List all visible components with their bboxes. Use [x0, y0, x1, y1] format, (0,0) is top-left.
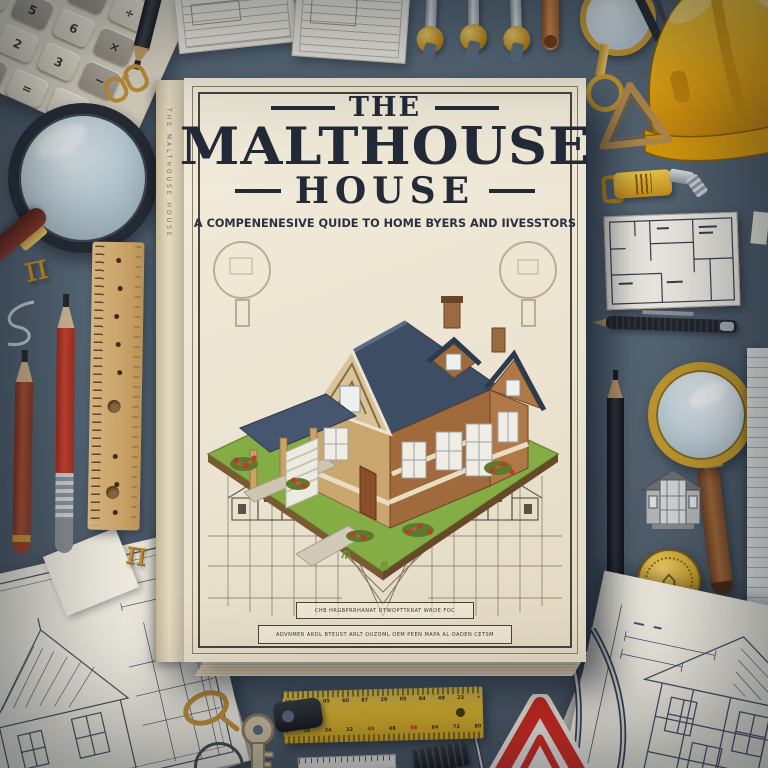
cover-house-illustration	[192, 236, 578, 631]
title-dash	[271, 106, 335, 110]
title-dash	[235, 189, 281, 193]
book-title: MALTHOUSE	[172, 121, 598, 173]
ruler-ticks	[91, 246, 105, 526]
calculator-key: 6	[51, 7, 97, 49]
title-dash	[435, 106, 499, 110]
wrench-notch	[465, 40, 481, 60]
book-title-line2: HOUSE	[295, 173, 475, 209]
ruler-hole	[106, 486, 119, 499]
brown-pencil	[12, 352, 34, 553]
pencil-lead	[22, 350, 28, 362]
wrench-icon	[414, 0, 446, 63]
wrench-notch	[509, 42, 524, 62]
cover-title-block: THE MALTHOUSE HOUSE A COMPENENESIVE QUID…	[184, 94, 586, 230]
calculator-key: 2	[0, 23, 40, 65]
house-model-icon	[638, 466, 708, 530]
cover-footer-text2: ADVNMER ARDL BTEUST ARLT OUZOML OEM PEEN…	[258, 625, 512, 644]
calculator-key: =	[4, 68, 50, 110]
wrench-icon	[500, 0, 532, 63]
ruler-hole	[456, 708, 465, 717]
wrench-icon	[458, 0, 488, 60]
document-stack	[173, 0, 299, 54]
spine-title: THE MALTHOUSE HOUSE	[165, 108, 172, 239]
pencil-cap	[12, 542, 30, 553]
white-ruler-fragment	[298, 754, 396, 768]
magnifier-sketch-icon	[214, 242, 556, 326]
wooden-ruler	[87, 242, 144, 531]
pencil-ferrule	[55, 473, 73, 519]
document-sheet	[181, 0, 292, 48]
document-stack	[292, 0, 411, 64]
ruler-dots	[116, 258, 121, 263]
tool-pipe	[685, 173, 708, 198]
pencil-lead	[63, 294, 69, 307]
desk-scene: 7 8 9 ÷ 4 5 6 × 1 2 3 − 0 = +	[0, 0, 768, 768]
pencil-body	[13, 382, 34, 535]
red-pencil	[55, 296, 75, 556]
pi-clip-icon: π	[20, 246, 52, 291]
calculator-key: 5	[10, 0, 56, 31]
pencil-body	[56, 328, 75, 473]
paper-edge	[750, 211, 768, 244]
title2-row: HOUSE	[184, 173, 586, 209]
document-sheet	[299, 0, 403, 58]
ruler-ticks	[131, 246, 142, 526]
title-dash	[489, 189, 535, 193]
cover-footer-text1: CHB HRGBPRRHANAT DTWOPTTKRAT WROE FOC	[296, 602, 474, 619]
black-cylinder-tool	[410, 741, 469, 768]
book-subtitle: A COMPENENESIVE QUIDE TO HOME BYERS AND …	[188, 216, 582, 230]
ruler-hole	[108, 400, 121, 413]
screwdriver-handle	[542, 0, 559, 50]
wire-squiggle-icon	[0, 296, 44, 352]
book-cover: THE MALTHOUSE HOUSE A COMPENENESIVE QUID…	[184, 78, 586, 662]
pencil-eraser	[55, 519, 73, 553]
calculator-key: 3	[36, 41, 82, 83]
floor-plan-card	[603, 212, 740, 311]
tool-body	[613, 169, 673, 199]
warning-triangle	[478, 694, 602, 768]
pen	[606, 316, 738, 334]
gold-magnifier-lens	[648, 362, 754, 468]
pen-clip	[642, 310, 694, 316]
